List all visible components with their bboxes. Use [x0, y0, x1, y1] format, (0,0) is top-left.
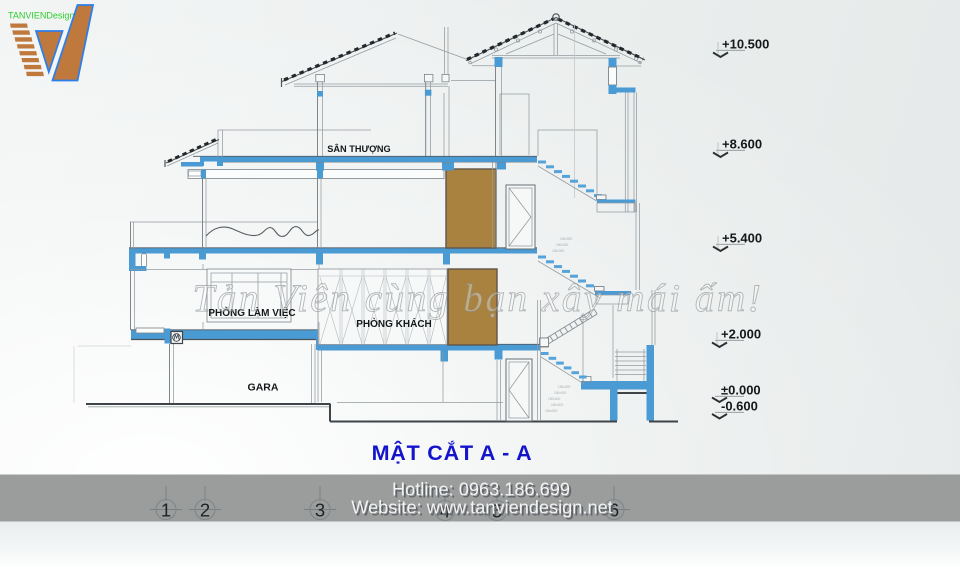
svg-text:GARA: GARA [248, 382, 279, 394]
svg-text:-0.600: -0.600 [721, 399, 758, 414]
svg-text:150x300: 150x300 [552, 249, 564, 253]
svg-text:150x300: 150x300 [558, 385, 570, 389]
svg-text:150x300: 150x300 [545, 409, 557, 413]
svg-text:150x300: 150x300 [556, 243, 568, 247]
svg-text:+5.400: +5.400 [722, 231, 762, 246]
svg-text:TANVIENDesign: TANVIENDesign [8, 11, 74, 21]
svg-text:Tản Viên cùng bạn xây mái ấm!: Tản Viên cùng bạn xây mái ấm! [193, 277, 764, 320]
svg-text:150x300: 150x300 [560, 237, 572, 241]
svg-text:150x300: 150x300 [551, 403, 563, 407]
svg-text:+2.000: +2.000 [721, 327, 761, 342]
svg-text:SÂN THƯỢNG: SÂN THƯỢNG [327, 143, 390, 154]
svg-text:+10.500: +10.500 [722, 37, 769, 52]
svg-text:2: 2 [200, 500, 210, 521]
svg-text:Website: www.tanviendesign.net: Website: www.tanviendesign.net [351, 498, 613, 518]
svg-text:150x300: 150x300 [554, 391, 566, 395]
svg-text:150x300: 150x300 [548, 397, 560, 401]
svg-text:+8.600: +8.600 [722, 137, 762, 152]
svg-text:1: 1 [161, 500, 171, 521]
svg-text:MẬT CẮT A - A: MẬT CẮT A - A [372, 440, 533, 465]
svg-text:±0.000: ±0.000 [721, 383, 761, 398]
svg-text:3: 3 [315, 500, 325, 521]
svg-text:Hotline: 0963.186.699: Hotline: 0963.186.699 [392, 480, 570, 500]
